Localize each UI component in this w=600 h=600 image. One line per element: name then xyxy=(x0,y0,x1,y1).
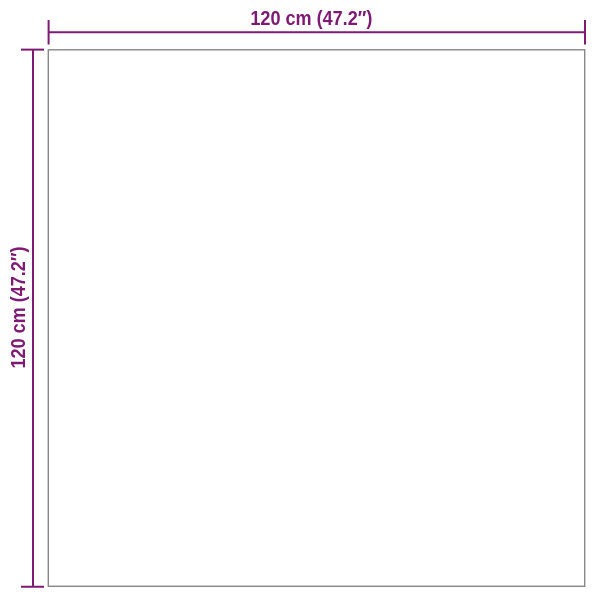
svg-text:120 cm (47.2″): 120 cm (47.2″) xyxy=(8,247,30,369)
svg-text:120 cm (47.2″): 120 cm (47.2″) xyxy=(250,8,372,30)
